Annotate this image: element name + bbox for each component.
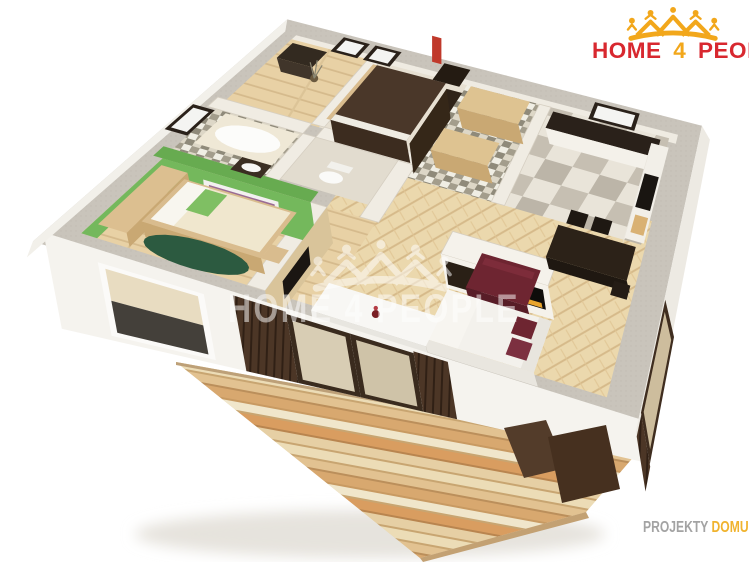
logo-text: HOME 4 PEOPLE [592, 38, 749, 63]
logo-word-people: PEOPLE [698, 38, 749, 63]
footer-text: PROJEKTY DOMU 24.CZ [643, 519, 749, 536]
red-chimney [432, 36, 441, 65]
footer-part-projekty: PROJEKTY [643, 519, 709, 536]
footer-part-domu: DOMU [712, 519, 749, 536]
watermark-text: HOME 4 PEOPLE [228, 287, 520, 331]
logo-word-home: HOME [592, 38, 662, 63]
home4people-logo: HOME 4 PEOPLE [592, 7, 749, 63]
render-canvas: HOME 4 PEOPLE HOME 4 PEOPLE PROJEKTY DOM… [0, 0, 749, 562]
floorplan-render-3d: HOME 4 PEOPLE HOME 4 PEOPLE PROJEKTY DOM… [0, 0, 749, 562]
logo-crown-icon [628, 7, 718, 38]
projektydomu24-watermark: PROJEKTY DOMU 24.CZ [643, 519, 749, 536]
logo-word-4: 4 [673, 38, 686, 63]
